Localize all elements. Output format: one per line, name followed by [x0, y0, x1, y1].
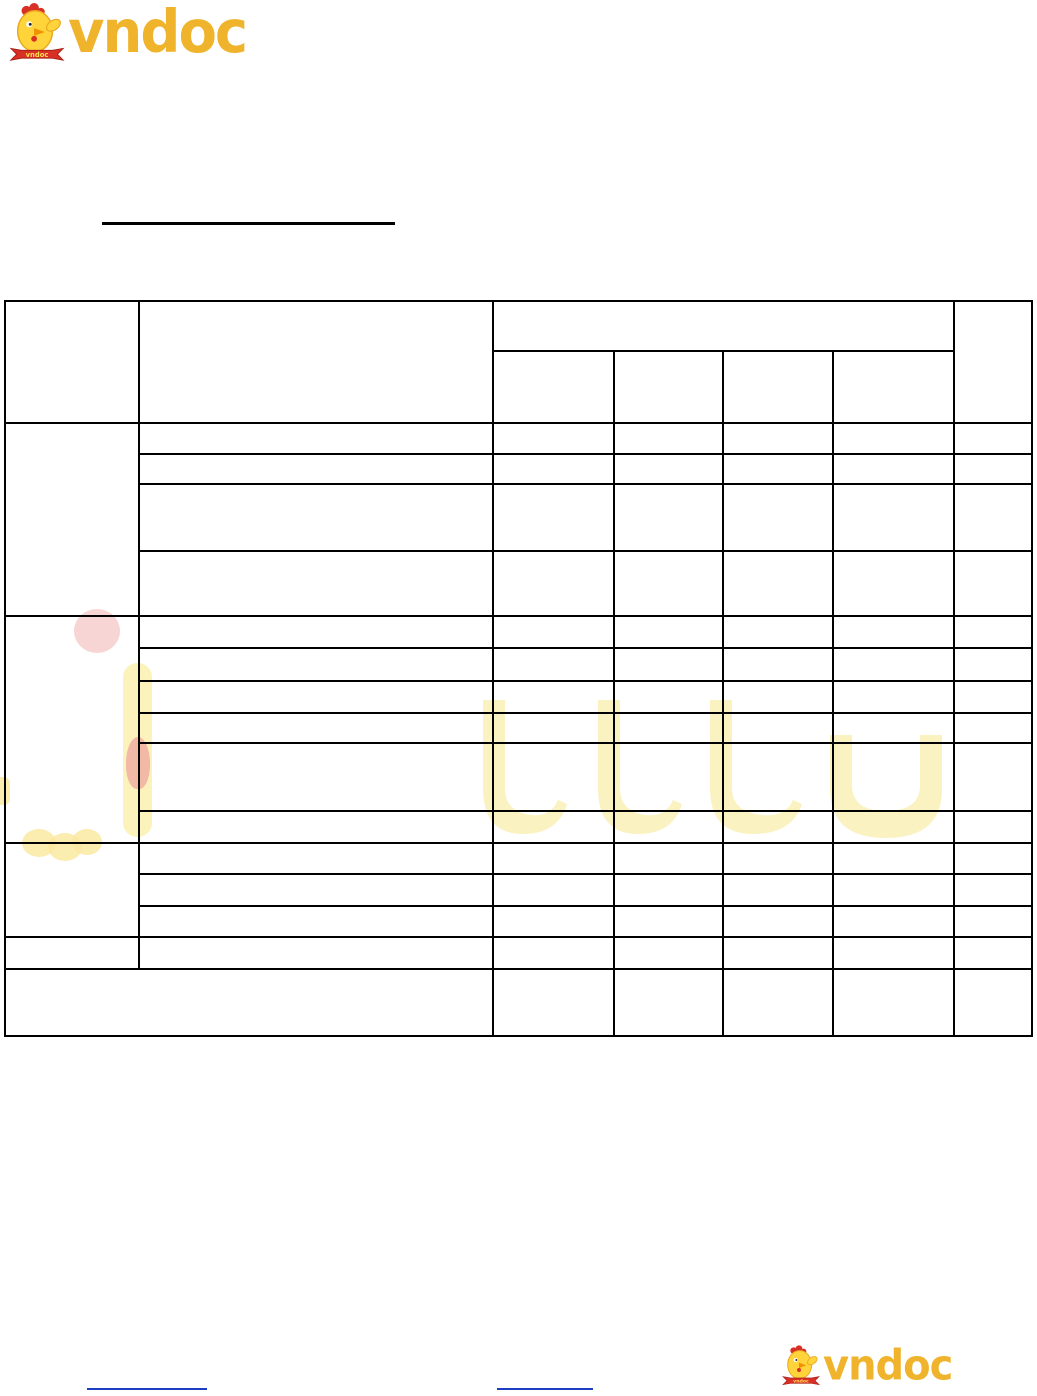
- table-cell: [723, 874, 833, 906]
- table-cell: [493, 454, 614, 484]
- table-cell: [833, 969, 954, 1036]
- table-cell: [614, 423, 723, 454]
- table-cell: [723, 811, 833, 843]
- table-cell: [614, 551, 723, 616]
- table-cell: [493, 648, 614, 681]
- table-cell: [614, 874, 723, 906]
- footer-link-1[interactable]: [87, 1378, 207, 1390]
- table-cell: [139, 454, 493, 484]
- table-cell: [5, 937, 139, 969]
- table-cell: [954, 648, 1032, 681]
- table-cell: [614, 681, 723, 713]
- table-cell: [723, 937, 833, 969]
- table-cell: [614, 743, 723, 811]
- table-cell: [954, 811, 1032, 843]
- table-cell: [614, 906, 723, 937]
- table-cell: [614, 454, 723, 484]
- table-cell: [723, 551, 833, 616]
- table-cell: [139, 681, 493, 713]
- table-cell: [954, 616, 1032, 648]
- table-cell: [139, 648, 493, 681]
- table-cell: [833, 937, 954, 969]
- table-cell: [954, 874, 1032, 906]
- chicken-mascot-icon: vndoc: [781, 1342, 821, 1390]
- footer-link-2[interactable]: [497, 1378, 593, 1390]
- table-cell: [493, 681, 614, 713]
- table-cell: [493, 551, 614, 616]
- table-cell: [954, 423, 1032, 454]
- total-row-label-cell: [5, 969, 493, 1036]
- table-cell: [493, 616, 614, 648]
- table-cell: [723, 906, 833, 937]
- svg-text:vndoc: vndoc: [793, 1379, 809, 1385]
- table-cell: [954, 484, 1032, 551]
- table-cell: [614, 937, 723, 969]
- table-cell: [614, 811, 723, 843]
- table-cell: [139, 743, 493, 811]
- table-cell: [833, 454, 954, 484]
- table-cell: [614, 648, 723, 681]
- table-cell: [723, 969, 833, 1036]
- table-cell: [493, 937, 614, 969]
- table-cell: [493, 874, 614, 906]
- table-cell: [954, 454, 1032, 484]
- table-cell: [954, 713, 1032, 743]
- header-cell-col-a: [5, 301, 139, 423]
- table-cell: [139, 843, 493, 874]
- vndoc-logo-top: vndoc vndoc: [8, 2, 246, 64]
- table-cell: [139, 874, 493, 906]
- table-cell: [833, 648, 954, 681]
- table-cell: [723, 681, 833, 713]
- table-cell: [954, 843, 1032, 874]
- table-cell: [493, 843, 614, 874]
- svg-text:vndoc: vndoc: [26, 51, 49, 59]
- table-cell: [723, 484, 833, 551]
- table-cell: [614, 969, 723, 1036]
- table-cell: [139, 423, 493, 454]
- heading-underline: [102, 222, 395, 225]
- table-cell: [954, 743, 1032, 811]
- table-cell: [139, 484, 493, 551]
- table-cell: [493, 713, 614, 743]
- table-cell: [833, 681, 954, 713]
- table-cell: [493, 969, 614, 1036]
- header-subcell-3: [723, 351, 833, 423]
- vndoc-logo-text: vndoc: [68, 4, 246, 63]
- table-cell: [614, 713, 723, 743]
- table-cell: [723, 454, 833, 484]
- table-cell: [139, 811, 493, 843]
- vndoc-logo-text: vndoc: [823, 1345, 952, 1387]
- table-cell: [954, 969, 1032, 1036]
- table-cell: [614, 843, 723, 874]
- header-cell-col-last: [954, 301, 1032, 423]
- table-cell: [833, 616, 954, 648]
- header-cell-col-b: [139, 301, 493, 423]
- table-cell: [833, 551, 954, 616]
- table-cell: [954, 681, 1032, 713]
- table-cell: [139, 906, 493, 937]
- table-cell: [139, 713, 493, 743]
- table-cell: [493, 484, 614, 551]
- table-cell: [833, 484, 954, 551]
- group3-label-cell: [5, 843, 139, 937]
- table-cell: [833, 874, 954, 906]
- table-cell: [139, 937, 493, 969]
- table-cell: [723, 743, 833, 811]
- table-cell: [723, 713, 833, 743]
- table-cell: [493, 906, 614, 937]
- table-cell: [833, 743, 954, 811]
- header-subcell-1: [493, 351, 614, 423]
- worksheet-table: [4, 300, 1033, 1037]
- table-cell: [833, 423, 954, 454]
- table-cell: [833, 713, 954, 743]
- group2-label-cell: [5, 616, 139, 843]
- table-cell: [833, 906, 954, 937]
- vndoc-logo-bottom: vndoc vndoc: [781, 1342, 952, 1390]
- table-cell: [139, 616, 493, 648]
- table-cell: [723, 843, 833, 874]
- table-cell: [723, 648, 833, 681]
- table-cell: [954, 937, 1032, 969]
- table-cell: [723, 423, 833, 454]
- table-cell: [833, 811, 954, 843]
- table-cell: [493, 811, 614, 843]
- table-cell: [723, 616, 833, 648]
- document-page: { "page": { "background": "#ffffff" }, "…: [0, 0, 1037, 1396]
- table-cell: [954, 551, 1032, 616]
- header-subcell-2: [614, 351, 723, 423]
- chicken-mascot-icon: vndoc: [8, 2, 66, 64]
- table-cell: [139, 551, 493, 616]
- table-cell: [614, 484, 723, 551]
- table-cell: [493, 423, 614, 454]
- group1-label-cell: [5, 423, 139, 616]
- header-cell-group: [493, 301, 954, 351]
- table-cell: [833, 843, 954, 874]
- table-cell: [954, 906, 1032, 937]
- header-subcell-4: [833, 351, 954, 423]
- table-cell: [493, 743, 614, 811]
- table-cell: [614, 616, 723, 648]
